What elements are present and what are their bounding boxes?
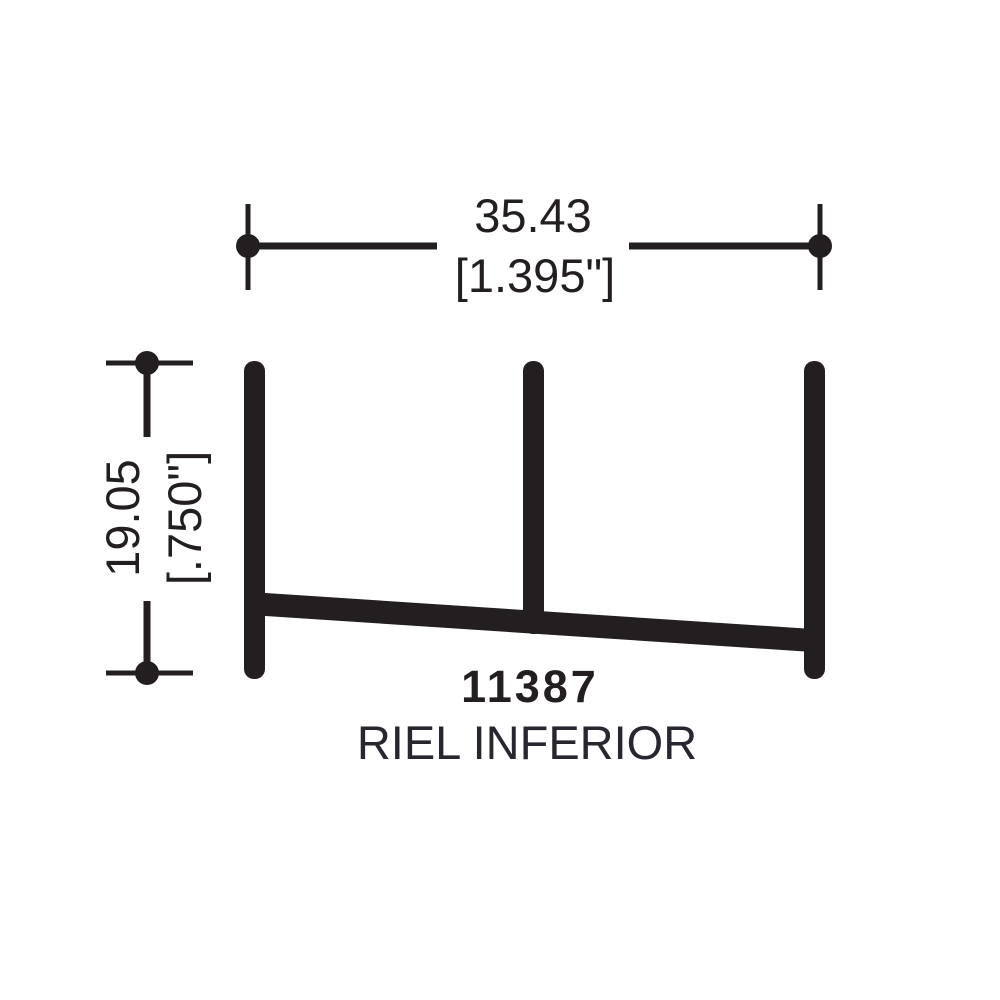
profile-drawing-svg: 35.43 [1.395"] 19.05 [.750"]: [0, 0, 1000, 1000]
height-dim-top-dot: [135, 351, 159, 375]
profile-middle-wall: [523, 361, 544, 634]
height-dimension-mm: 19.05: [96, 459, 149, 577]
profile-right-wall: [804, 361, 825, 679]
part-name: RIEL INFERIOR: [357, 716, 697, 769]
technical-drawing-canvas: 35.43 [1.395"] 19.05 [.750"]: [0, 0, 1000, 1000]
width-dimension-mm: 35.43: [474, 189, 592, 242]
profile-left-wall: [244, 361, 265, 679]
profile-shape: [244, 361, 825, 679]
height-dimension-inches: [.750"]: [158, 451, 211, 585]
height-dim-bottom-dot: [135, 661, 159, 685]
width-dim-left-dot: [236, 234, 260, 258]
part-number: 11387: [461, 661, 599, 712]
width-dimension: 35.43 [1.395"]: [236, 189, 832, 302]
width-dimension-inches: [1.395"]: [455, 249, 615, 302]
width-dim-right-dot: [808, 234, 832, 258]
height-dimension: 19.05 [.750"]: [96, 351, 211, 685]
